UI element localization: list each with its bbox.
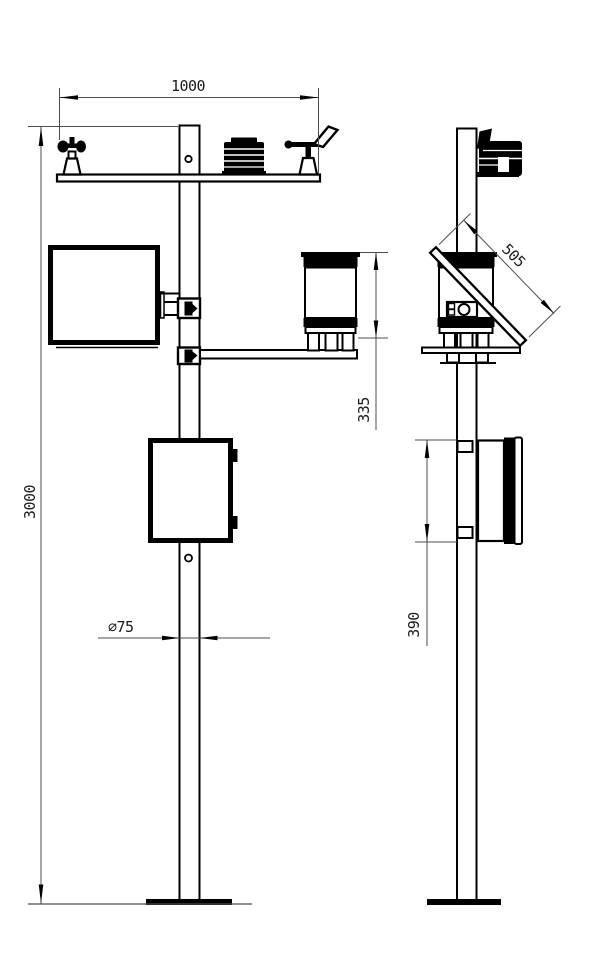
base-plate-side <box>427 899 501 905</box>
anemometer-base <box>64 159 81 175</box>
box-clamp-top <box>458 441 473 452</box>
rain-gauge-bottom-band <box>304 318 358 327</box>
rain-gauge-rim <box>301 252 360 257</box>
clamp-nut <box>449 310 455 316</box>
weather-station-drawing: 1000 3000 335 ∅75 <box>0 0 600 956</box>
dimension-label-pole-diameter: ∅75 <box>108 618 134 636</box>
pole-top-hole <box>185 156 191 162</box>
sensor-cluster-base <box>477 172 519 177</box>
front-view: 1000 3000 335 ∅75 <box>21 77 388 905</box>
wind-vane-base <box>300 158 318 175</box>
mast-pole-side <box>457 129 477 903</box>
arrowhead <box>374 253 379 271</box>
arrowhead <box>162 636 180 641</box>
wind-vane-shaft <box>306 146 312 159</box>
box-hinge-top <box>231 449 238 462</box>
arrowhead <box>374 321 379 339</box>
arrowhead <box>39 885 44 904</box>
arm-plate-block <box>476 353 488 363</box>
panel-mount-rail <box>161 292 165 318</box>
clamp-bolt <box>185 302 193 316</box>
box-body-side <box>478 441 504 542</box>
clamp-nut <box>449 304 455 310</box>
arrowhead <box>541 300 554 314</box>
sensor-gap <box>498 157 509 172</box>
box-clamp-bottom <box>458 527 473 538</box>
arm-plate <box>422 348 520 354</box>
radiation-shield-body <box>224 142 264 175</box>
pole-clamp-side <box>447 302 477 317</box>
side-view: 505 390 <box>405 129 561 906</box>
dimension-390: 390 <box>405 440 457 646</box>
radiation-shield <box>222 138 266 176</box>
arrowhead <box>300 95 319 100</box>
solar-panel-frame <box>51 248 158 343</box>
clamp-bolt-head <box>459 304 470 315</box>
rain-gauge-foot <box>461 333 473 348</box>
control-box-body <box>151 441 231 541</box>
box-hinge-bottom <box>231 516 238 529</box>
anemometer-cup-left <box>58 141 69 153</box>
anemometer-cup-right <box>76 141 86 153</box>
rain-gauge-top-band <box>304 257 358 267</box>
wind-vane <box>285 127 338 175</box>
rain-gauge-foot <box>444 333 455 348</box>
dimension-label-solar-panel-length: 505 <box>498 240 529 271</box>
dimension-label-mast-height: 3000 <box>21 484 39 519</box>
pole-cable-hole <box>185 555 192 562</box>
radiation-shield-foot <box>222 171 266 175</box>
cup-anemometer <box>58 137 87 175</box>
arrowhead <box>200 636 218 641</box>
engineering-drawing-page: 1000 3000 335 ∅75 <box>0 0 600 956</box>
extension-line <box>529 306 561 337</box>
rain-gauge-foot <box>478 333 489 348</box>
rain-gauge-front <box>301 252 360 351</box>
arm-plate-block <box>447 353 459 363</box>
dimension-335: 335 <box>355 253 388 431</box>
rain-gauge-body <box>305 268 356 319</box>
sensor-crossarm <box>57 175 320 182</box>
rain-gauge-foot <box>308 333 319 351</box>
arrowhead <box>425 524 430 542</box>
dimension-label-enclosure-height: 390 <box>405 612 423 638</box>
arrowhead <box>39 127 44 146</box>
rain-gauge-foot <box>326 333 338 351</box>
rain-gauge-bottom-band <box>438 318 495 327</box>
dimension-label-rain-gauge-height: 335 <box>355 397 373 423</box>
arrowhead <box>60 95 79 100</box>
box-door-face <box>515 438 523 545</box>
rain-gauge-collar <box>440 327 493 333</box>
top-sensors-side <box>477 129 522 178</box>
solar-panel-front <box>51 248 201 348</box>
anemometer-hub <box>70 137 75 147</box>
clamp-bolt <box>185 350 193 363</box>
arrowhead <box>425 440 430 458</box>
dimension-label-crossarm-width: 1000 <box>171 77 206 95</box>
box-door-side <box>504 438 515 545</box>
rain-gauge-foot <box>343 333 354 351</box>
wind-vane-counterweight <box>285 141 293 149</box>
rain-gauge-collar <box>306 327 356 333</box>
wind-vane-fin <box>314 127 338 148</box>
